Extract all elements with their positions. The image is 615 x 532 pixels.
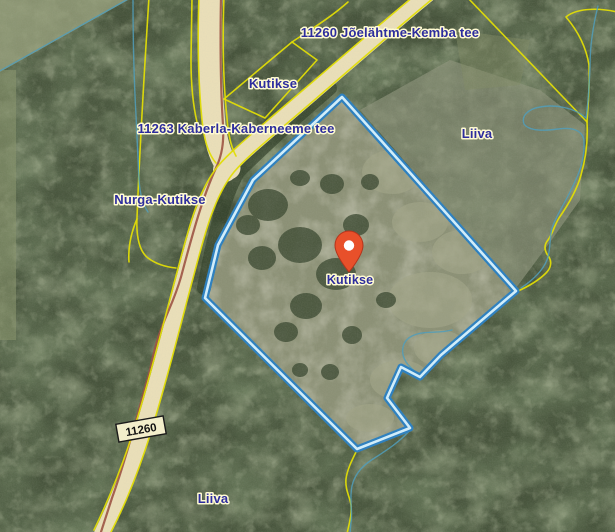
place-label-liiva-east: Liiva [462,126,493,141]
marsh-strip [0,70,16,340]
place-label-kutikse-north: Kutikse [249,76,297,91]
place-label-nurga-kutikse: Nurga-Kutikse [114,192,205,207]
road-label-joelahtme-kemba: 11260 Jõelähtme-Kemba tee [301,25,479,40]
aerial-map-canvas[interactable]: 11260 Jõelähtme-Kemba tee 11263 Kaberla-… [0,0,615,532]
place-label-liiva-south: Liiva [198,491,229,506]
marker-pin-hole [344,240,354,250]
marker-label: Kutikse [327,273,374,287]
road-label-kaberla-kaberneeme: 11263 Kaberla-Kaberneeme tee [137,121,334,136]
map-viewport[interactable]: 11260 Jõelähtme-Kemba tee 11263 Kaberla-… [0,0,615,532]
